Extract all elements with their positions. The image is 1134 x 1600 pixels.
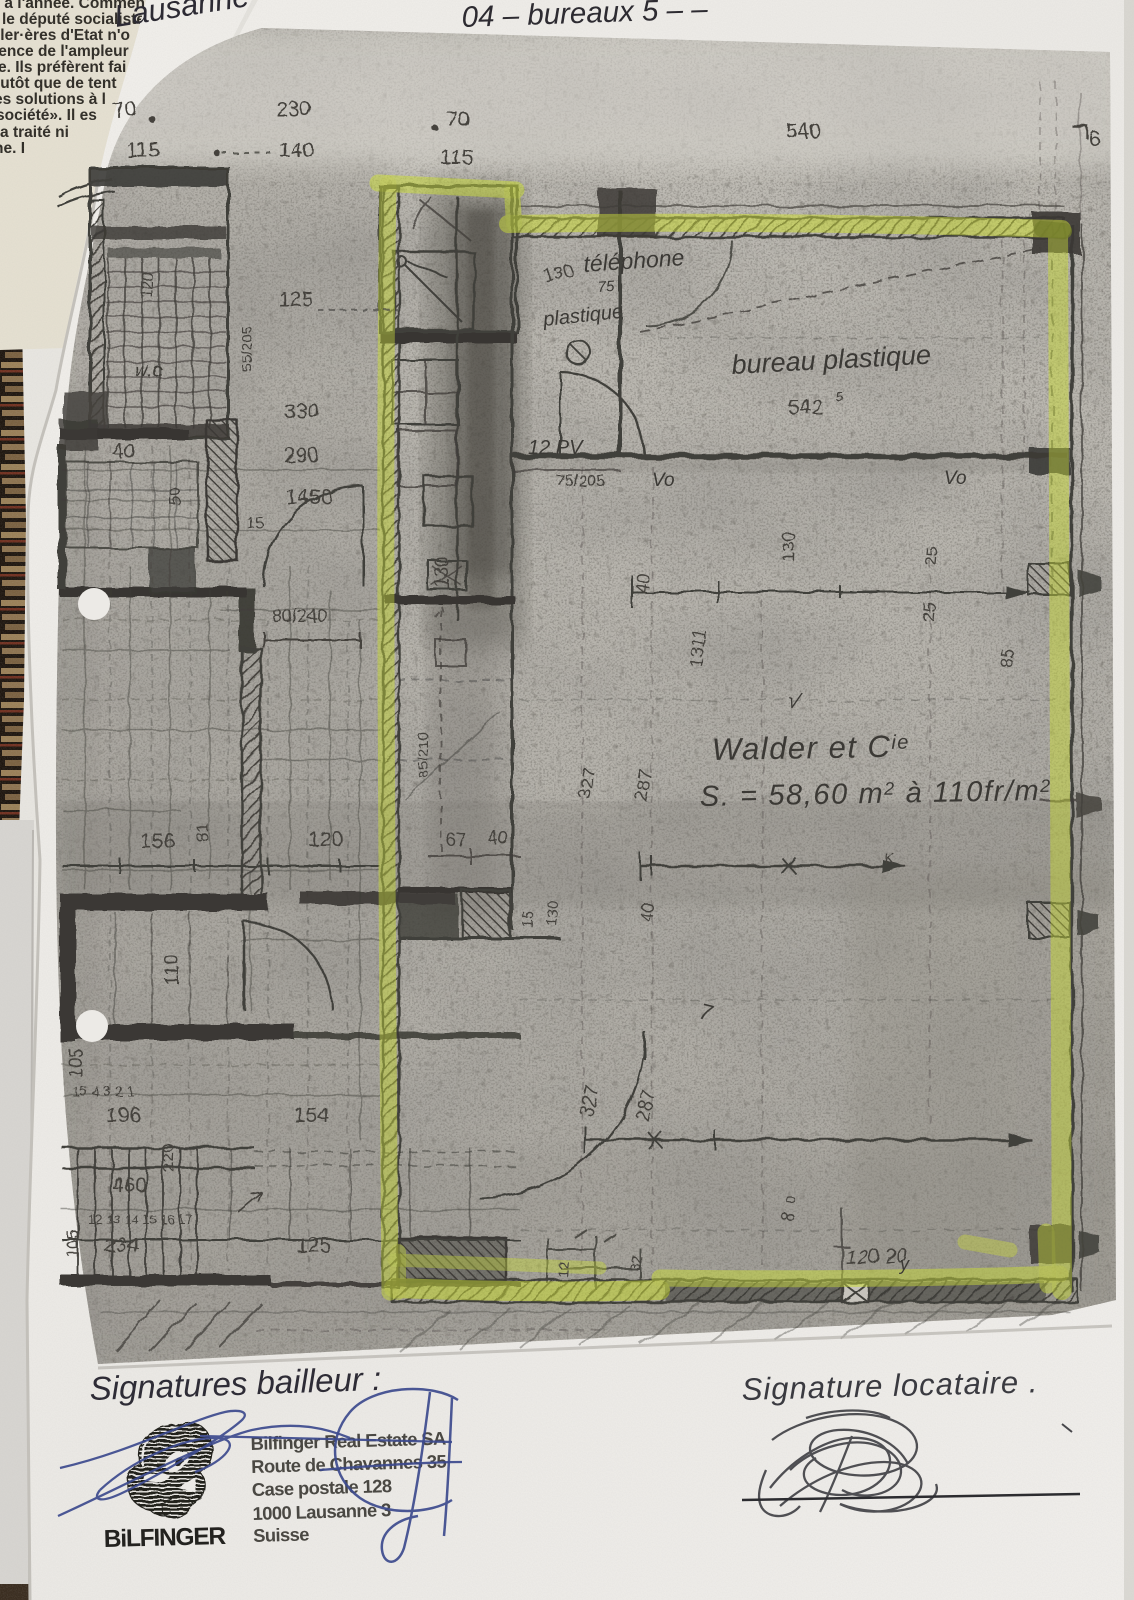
- svg-text:140: 140: [279, 139, 314, 162]
- svg-text:K: K: [884, 851, 895, 868]
- svg-text:81: 81: [193, 823, 212, 842]
- svg-text:w.c: w.c: [134, 360, 162, 381]
- svg-text:125: 125: [278, 288, 313, 311]
- svg-text:234: 234: [104, 1234, 139, 1257]
- svg-text:32: 32: [627, 1254, 645, 1272]
- svg-text:75: 75: [597, 278, 615, 296]
- svg-text:55/205: 55/205: [239, 326, 256, 372]
- svg-text:540: 540: [786, 120, 821, 143]
- svg-text:120: 120: [308, 828, 343, 851]
- svg-text:Suisse: Suisse: [253, 1523, 310, 1546]
- svg-text:125: 125: [296, 1234, 331, 1257]
- svg-text:75/205: 75/205: [556, 473, 605, 490]
- svg-text:40: 40: [488, 828, 508, 848]
- svg-text:12: 12: [555, 1260, 573, 1278]
- svg-text:230: 230: [276, 98, 311, 121]
- svg-text:15 4 3 2 1: 15 4 3 2 1: [72, 1083, 134, 1099]
- svg-text:70: 70: [446, 108, 469, 131]
- svg-text:110: 110: [162, 955, 183, 985]
- svg-text:67: 67: [446, 830, 466, 850]
- svg-text:12 PV: 12 PV: [528, 437, 584, 459]
- svg-text:Vo: Vo: [652, 470, 675, 491]
- svg-text:y: y: [898, 1254, 910, 1274]
- svg-text:5: 5: [836, 389, 844, 405]
- svg-text:105: 105: [66, 1048, 86, 1078]
- svg-text:220: 220: [159, 1144, 178, 1172]
- svg-text:1450: 1450: [286, 486, 333, 509]
- svg-text:130: 130: [432, 556, 453, 588]
- svg-text:130: 130: [543, 900, 562, 926]
- svg-text:S. = 58,60 m2 à 110fr/m2: S. = 58,60 m2 à 110fr/m2: [700, 775, 1053, 813]
- svg-text:156: 156: [140, 830, 175, 853]
- svg-text:85: 85: [997, 648, 1018, 669]
- svg-text:Vo: Vo: [944, 468, 967, 489]
- svg-text:40: 40: [632, 573, 654, 595]
- svg-text:105: 105: [63, 1230, 82, 1258]
- svg-text:196: 196: [106, 1104, 141, 1127]
- svg-text:330: 330: [284, 400, 319, 423]
- svg-text:120: 120: [139, 271, 156, 298]
- svg-text:12 13 14 15 16 17: 12 13 14 15 16 17: [88, 1212, 193, 1227]
- svg-text:6: 6: [1089, 128, 1101, 151]
- svg-text:130: 130: [778, 531, 799, 562]
- svg-text:154: 154: [294, 1104, 329, 1127]
- svg-text:BiLFINGER: BiLFINGER: [103, 1523, 226, 1553]
- svg-text:Case postale 128: Case postale 128: [252, 1475, 393, 1500]
- svg-text:460: 460: [112, 1174, 147, 1197]
- svg-text:85/210: 85/210: [415, 732, 432, 778]
- svg-text:115: 115: [126, 139, 159, 162]
- svg-text:40: 40: [637, 902, 658, 923]
- svg-text:290: 290: [284, 444, 319, 467]
- svg-text:120 20: 120 20: [845, 1245, 907, 1269]
- svg-text:0: 0: [782, 1195, 799, 1204]
- svg-text:15: 15: [519, 910, 537, 928]
- svg-text:80/240: 80/240: [272, 606, 327, 626]
- svg-text:Walder et Cie: Walder et Cie: [712, 729, 911, 767]
- svg-text:25: 25: [919, 602, 940, 623]
- svg-text:25: 25: [921, 546, 942, 567]
- svg-text:40: 40: [112, 440, 135, 463]
- svg-text:8: 8: [778, 1211, 798, 1222]
- svg-text:115: 115: [440, 146, 473, 169]
- svg-text:542: 542: [788, 396, 823, 419]
- svg-text:70: 70: [111, 97, 137, 123]
- svg-text:15: 15: [246, 515, 264, 532]
- svg-text:1311: 1311: [686, 628, 709, 668]
